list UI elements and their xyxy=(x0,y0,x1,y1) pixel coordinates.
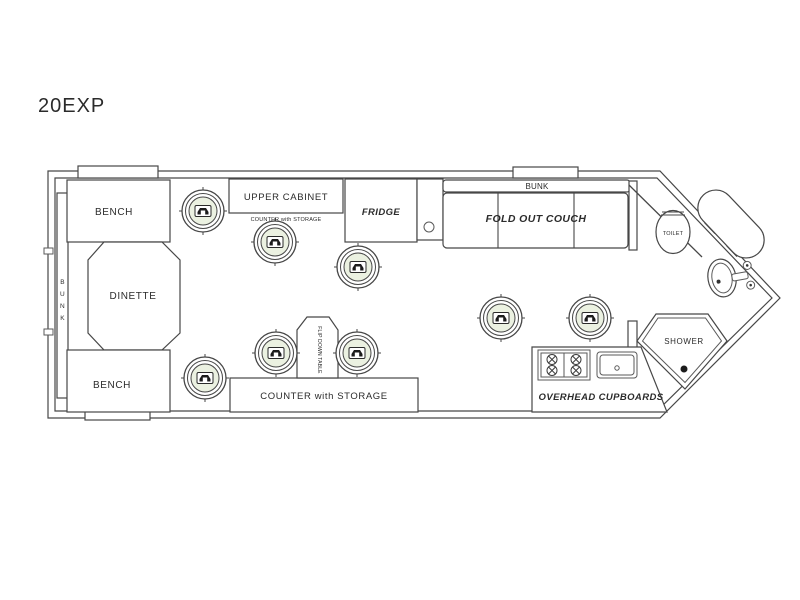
upper-cabinet-note: COUNTER with STORAGE xyxy=(251,217,322,223)
bathroom-sink xyxy=(705,254,756,299)
stove xyxy=(538,350,590,380)
svg-text:DINETTE: DINETTE xyxy=(110,291,157,302)
floorplan-page: 20EXP B U N K BENCH DINETTE BENCH UPPER … xyxy=(0,0,800,600)
hole-cover-icon xyxy=(349,348,365,359)
ice-hole xyxy=(251,218,299,266)
model-title: 20EXP xyxy=(38,95,105,117)
svg-text:FLIP DOWN TABLE: FLIP DOWN TABLE xyxy=(316,326,322,374)
svg-text:BUNK: BUNK xyxy=(525,182,548,191)
toilet: TOILET xyxy=(656,211,690,254)
kitchen-counter: OVERHEAD CUPBOARDS xyxy=(532,347,667,412)
ice-hole xyxy=(334,243,382,291)
kitchen-sink xyxy=(597,352,637,378)
wall-seam-lower xyxy=(44,329,53,335)
fridge: FRIDGE xyxy=(345,179,417,242)
svg-text:UPPER CABINET: UPPER CABINET xyxy=(244,192,328,203)
entry-door-top xyxy=(78,166,158,178)
ice-hole xyxy=(477,294,525,342)
propane-tank xyxy=(690,183,771,266)
shower-drain xyxy=(681,366,688,373)
dinette-table: DINETTE xyxy=(88,242,180,350)
svg-text:BENCH: BENCH xyxy=(95,207,133,218)
svg-text:SHOWER: SHOWER xyxy=(664,337,704,346)
svg-text:COUNTER with STORAGE: COUNTER with STORAGE xyxy=(260,391,387,402)
svg-text:FOLD OUT COUCH: FOLD OUT COUCH xyxy=(486,213,587,225)
ice-hole xyxy=(566,294,614,342)
svg-text:TOILET: TOILET xyxy=(663,231,684,237)
bench-bottom: BENCH xyxy=(67,350,170,412)
hole-cover-icon xyxy=(267,237,283,248)
bunk-top: BUNK xyxy=(443,180,630,192)
flip-down-table: FLIP DOWN TABLE xyxy=(297,317,338,378)
svg-text:BENCH: BENCH xyxy=(93,380,131,391)
hole-cover-icon xyxy=(195,206,211,217)
side-cabinet xyxy=(417,179,443,240)
ice-hole xyxy=(179,187,227,235)
shower-wall xyxy=(628,321,637,348)
hole-cover-icon xyxy=(197,373,213,384)
cabinet-fixture xyxy=(424,222,434,232)
floorplan-canvas: 20EXP B U N K BENCH DINETTE BENCH UPPER … xyxy=(0,0,800,600)
svg-text:N: N xyxy=(60,303,65,310)
ice-hole xyxy=(333,329,381,377)
bench-top: BENCH xyxy=(67,180,170,242)
svg-text:U: U xyxy=(60,291,65,298)
hole-cover-icon xyxy=(350,262,366,273)
svg-text:OVERHEAD CUPBOARDS: OVERHEAD CUPBOARDS xyxy=(539,392,664,403)
fold-out-couch: FOLD OUT COUCH xyxy=(443,193,628,248)
hole-cover-icon xyxy=(493,313,509,324)
svg-text:FRIDGE: FRIDGE xyxy=(362,207,401,218)
upper-cabinet: UPPER CABINET COUNTER with STORAGE xyxy=(229,179,343,223)
svg-text:K: K xyxy=(60,315,65,322)
ice-hole xyxy=(181,354,229,402)
hole-cover-icon xyxy=(268,348,284,359)
counter-with-storage: COUNTER with STORAGE xyxy=(230,378,418,412)
svg-text:B: B xyxy=(60,279,65,286)
ice-hole xyxy=(252,329,300,377)
hole-cover-icon xyxy=(582,313,598,324)
wall-seam-upper xyxy=(44,248,53,254)
window-top xyxy=(513,167,578,178)
